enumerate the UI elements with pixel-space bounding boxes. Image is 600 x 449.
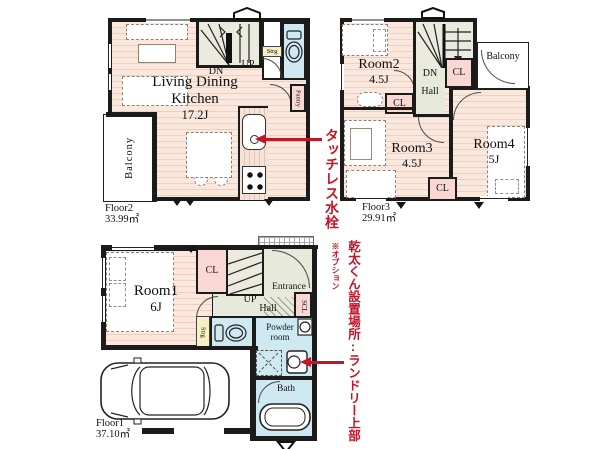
floor2-vent-mark [232, 7, 262, 21]
floor2-ldk-size: 17.2J [128, 108, 262, 122]
floor3-room2-bed [342, 24, 388, 56]
floor2-pantry-label: Pantry [294, 90, 301, 107]
floor3-closet-room3-label: CL [436, 183, 449, 194]
floor1-bathtub [258, 402, 312, 432]
floor1-name: Floor1 [96, 418, 130, 429]
floor3-dn-label: DN [416, 68, 444, 79]
floor2-balcony-wall-right [152, 112, 157, 202]
floor1-room1-label: Room1 6J [120, 283, 192, 314]
floor1-powder-line2: room [254, 332, 306, 342]
floor1-room1-size: 6J [120, 300, 192, 315]
floor2-mark-1 [172, 199, 182, 206]
kanta-annotation: 乾太くん設置場所:ランドリー上部 [344, 240, 363, 449]
floor2-area: 33.99㎡ [105, 214, 139, 225]
floor3-window-bottom-2 [480, 196, 508, 201]
floor3-window-top [352, 17, 384, 23]
floor3-room2-name: Room2 [342, 57, 416, 73]
floor2-stove [242, 166, 266, 194]
floor3-hall-label: Hall [414, 86, 446, 97]
floor3-name: Floor3 [362, 202, 396, 213]
floor3-closet-hall-label: CL [453, 67, 466, 78]
boundary-dash-1 [142, 428, 174, 434]
floor2-sofa [126, 24, 188, 40]
floor1-closet-label: CL [206, 265, 219, 276]
floor3-mark-2 [474, 202, 484, 209]
floor3-room4-name: Room4 [464, 137, 524, 153]
touchless-annotation: タッチレス水栓 [322, 128, 342, 238]
floor2-island-table [186, 132, 232, 178]
floor3-window-right [525, 128, 530, 166]
floor3-window-bottom-1 [356, 196, 386, 201]
floor2-window-left-2 [106, 74, 111, 90]
floor1-toilet [210, 316, 254, 350]
floor2-mark-3 [264, 199, 274, 206]
floor3-room4-size: 5J [464, 153, 524, 166]
floor1-closet: CL [196, 248, 228, 294]
floor1-area: 37.10㎡ [96, 429, 130, 440]
floor2-toilet [282, 22, 306, 80]
floor2-caption: Floor2 33.99㎡ [105, 203, 139, 225]
floor1-storage-label: Strg [199, 327, 206, 338]
floor2-storage-tag: Strg [262, 46, 282, 57]
floor1-caption: Floor1 37.10㎡ [96, 418, 130, 440]
floor2-name: Floor2 [105, 203, 139, 214]
floor2-up-label: UP [236, 59, 260, 70]
floor1-window-top [112, 245, 154, 250]
floorplan-canvas: Balcony DN UP Strg Pantry Living Dining … [0, 0, 600, 449]
floor3-room3-size: 4.5J [378, 157, 446, 170]
floor2-window-top [146, 17, 190, 23]
floor1-wall-bath-left [250, 348, 254, 441]
floor2-balcony-label: Balcony [124, 137, 136, 179]
touchless-arrow-line [264, 138, 322, 141]
floor3-mark-1 [396, 202, 406, 209]
floor2-window-left-1 [106, 44, 111, 68]
floor1-powder-label: Powder room [254, 322, 306, 342]
floor3-room3-name: Room3 [378, 141, 446, 157]
floor1-wall-right [312, 245, 317, 441]
floor1-wall-bottom [101, 346, 258, 350]
floor1-shoe-closet-label: SCL [299, 300, 307, 313]
floor2-storage-label: Strg [267, 48, 278, 55]
floor1-window-left-2 [100, 296, 105, 322]
floor2-mark-2 [185, 199, 195, 206]
floor1-window-left-1 [100, 258, 105, 288]
floor1-hall-label: Hall [252, 303, 284, 314]
floor3-closet-room3: CL [428, 177, 457, 201]
floor3-room2-chair [357, 92, 383, 107]
floor2-ldk-line1: Living Dining [128, 74, 262, 91]
floor3-vent-mark [420, 7, 446, 20]
kanta-arrow-line [310, 361, 344, 364]
floor1-powder-line1: Powder [254, 322, 306, 332]
car [98, 356, 232, 426]
floor3-caption: Floor3 29.91㎡ [362, 202, 396, 224]
floor3-wall-room2-bottom [342, 107, 416, 110]
floor1-mark-top [186, 246, 196, 253]
floor2-pantry: Pantry [290, 84, 306, 112]
floor3-area: 29.91㎡ [362, 213, 396, 224]
floor3-room3-label: Room3 4.5J [378, 141, 446, 170]
floor2-balcony: Balcony [103, 114, 156, 202]
floor3-closet-room2: CL [385, 93, 414, 114]
floor1-mark-bath [276, 440, 296, 449]
floor2-ldk-label: Living Dining Kitchen 17.2J [128, 74, 262, 122]
floor2-ldk-line2: Kitchen [128, 91, 262, 108]
floor1-room1-name: Room1 [120, 283, 192, 300]
floor3-room2-label: Room2 4.5J [342, 57, 416, 86]
floor3-closet-hall: CL [445, 58, 473, 88]
floor3-wall-hall-bottom [413, 114, 453, 117]
floor1-bath-label: Bath [268, 384, 304, 395]
floor1-stairs [226, 248, 264, 296]
floor1-washer-pan [256, 350, 282, 376]
floor3-room4-label: Room4 5J [464, 137, 524, 166]
kanta-note: ※オプション [330, 242, 341, 298]
floor1-entrance-label: Entrance [266, 282, 312, 293]
floor1-storage: Strg [196, 316, 210, 348]
floor3-room2-size: 4.5J [342, 73, 416, 86]
floor3-room3-bed [346, 170, 396, 198]
floor2-table [138, 44, 176, 63]
